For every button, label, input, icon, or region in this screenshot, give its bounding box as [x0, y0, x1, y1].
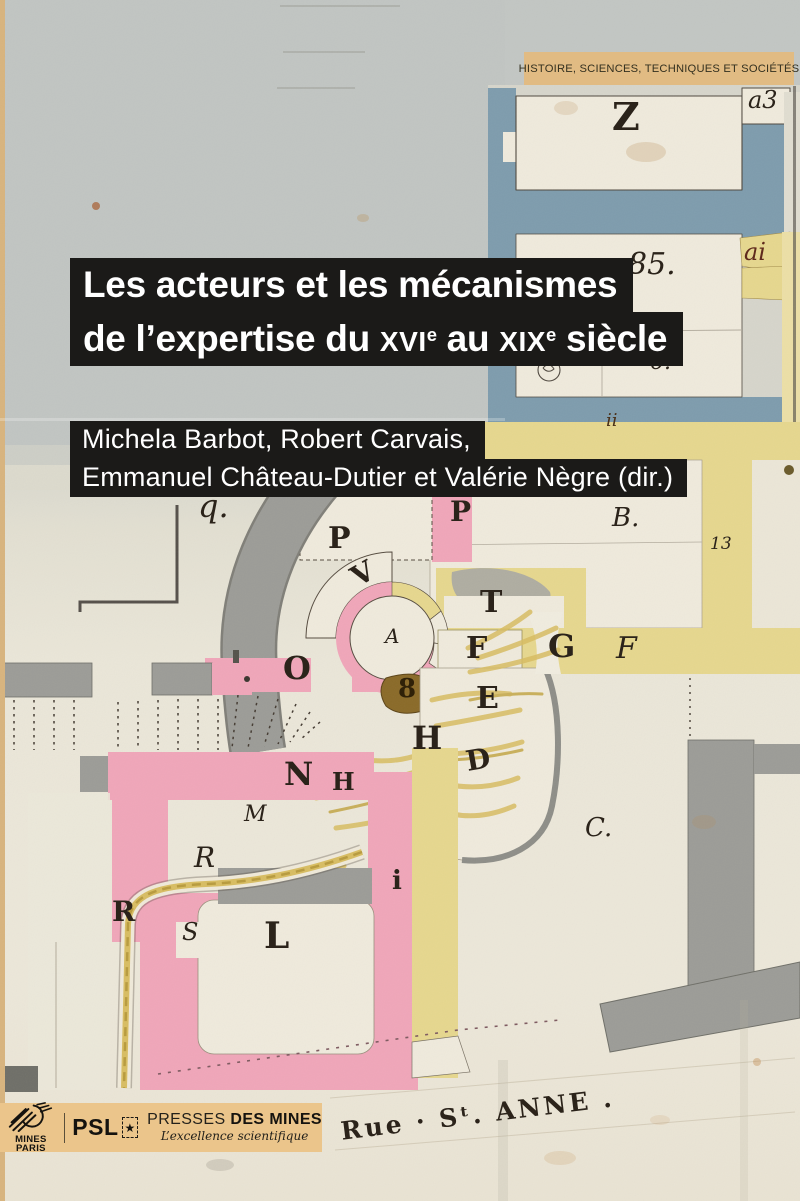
title-block: Les acteurs et les mécanismes de l’exper… — [70, 258, 683, 366]
publisher-tagline: L’excellence scientifique — [147, 1130, 322, 1143]
presses-light-text: PRESSES — [147, 1111, 225, 1128]
logo-divider — [64, 1113, 66, 1143]
psl-star-icon: ★ — [122, 1117, 139, 1138]
publisher-banner: MINES PARIS PSL ★ PRESSES DES MINES L’ex… — [0, 1103, 322, 1152]
title-sup-2: e — [546, 324, 556, 345]
title-line-1: Les acteurs et les mécanismes — [70, 258, 633, 312]
title-line-2-post: siècle — [556, 318, 667, 359]
mines-paris-logo-block: MINES PARIS — [4, 1102, 58, 1154]
plan-artwork — [0, 0, 800, 1201]
presses-bold-text: DES MINES — [230, 1111, 322, 1128]
authors-line-2-text: Emmanuel Château-Dutier et Valérie Nègre… — [82, 462, 673, 492]
series-banner-label: HISTOIRE, SCIENCES, TECHNIQUES ET SOCIÉT… — [519, 63, 800, 75]
title-sup-1: e — [427, 324, 437, 345]
authors-line-2: Emmanuel Château-Dutier et Valérie Nègre… — [70, 459, 687, 497]
title-line-2: de l’expertise du XVIe au XIXe siècle — [70, 312, 683, 366]
presses-des-mines-block: PRESSES DES MINES L’excellence scientifi… — [147, 1112, 322, 1142]
mines-paris-logo-icon — [8, 1102, 54, 1132]
paper-texture — [0, 0, 800, 1201]
presses-des-mines-wordmark: PRESSES DES MINES — [147, 1112, 322, 1129]
psl-label: PSL — [72, 1114, 118, 1141]
series-banner: HISTOIRE, SCIENCES, TECHNIQUES ET SOCIÉT… — [524, 52, 794, 85]
title-century-2: XIX — [499, 326, 546, 357]
title-century-1: XVI — [380, 326, 427, 357]
authors-block: Michela Barbot, Robert Carvais, Emmanuel… — [70, 421, 687, 497]
title-line-1-text: Les acteurs et les mécanismes — [83, 264, 617, 305]
title-line-2-mid: au — [437, 318, 500, 359]
book-cover: Za385.ai6.iiB.13q.PPVAO8TFGFEHDNHMRRiSLC… — [0, 0, 800, 1201]
authors-line-1: Michela Barbot, Robert Carvais, — [70, 421, 485, 459]
authors-line-1-text: Michela Barbot, Robert Carvais, — [82, 424, 471, 454]
mines-paris-label: MINES PARIS — [4, 1135, 58, 1154]
title-line-2-pre: de l’expertise du — [83, 318, 380, 359]
